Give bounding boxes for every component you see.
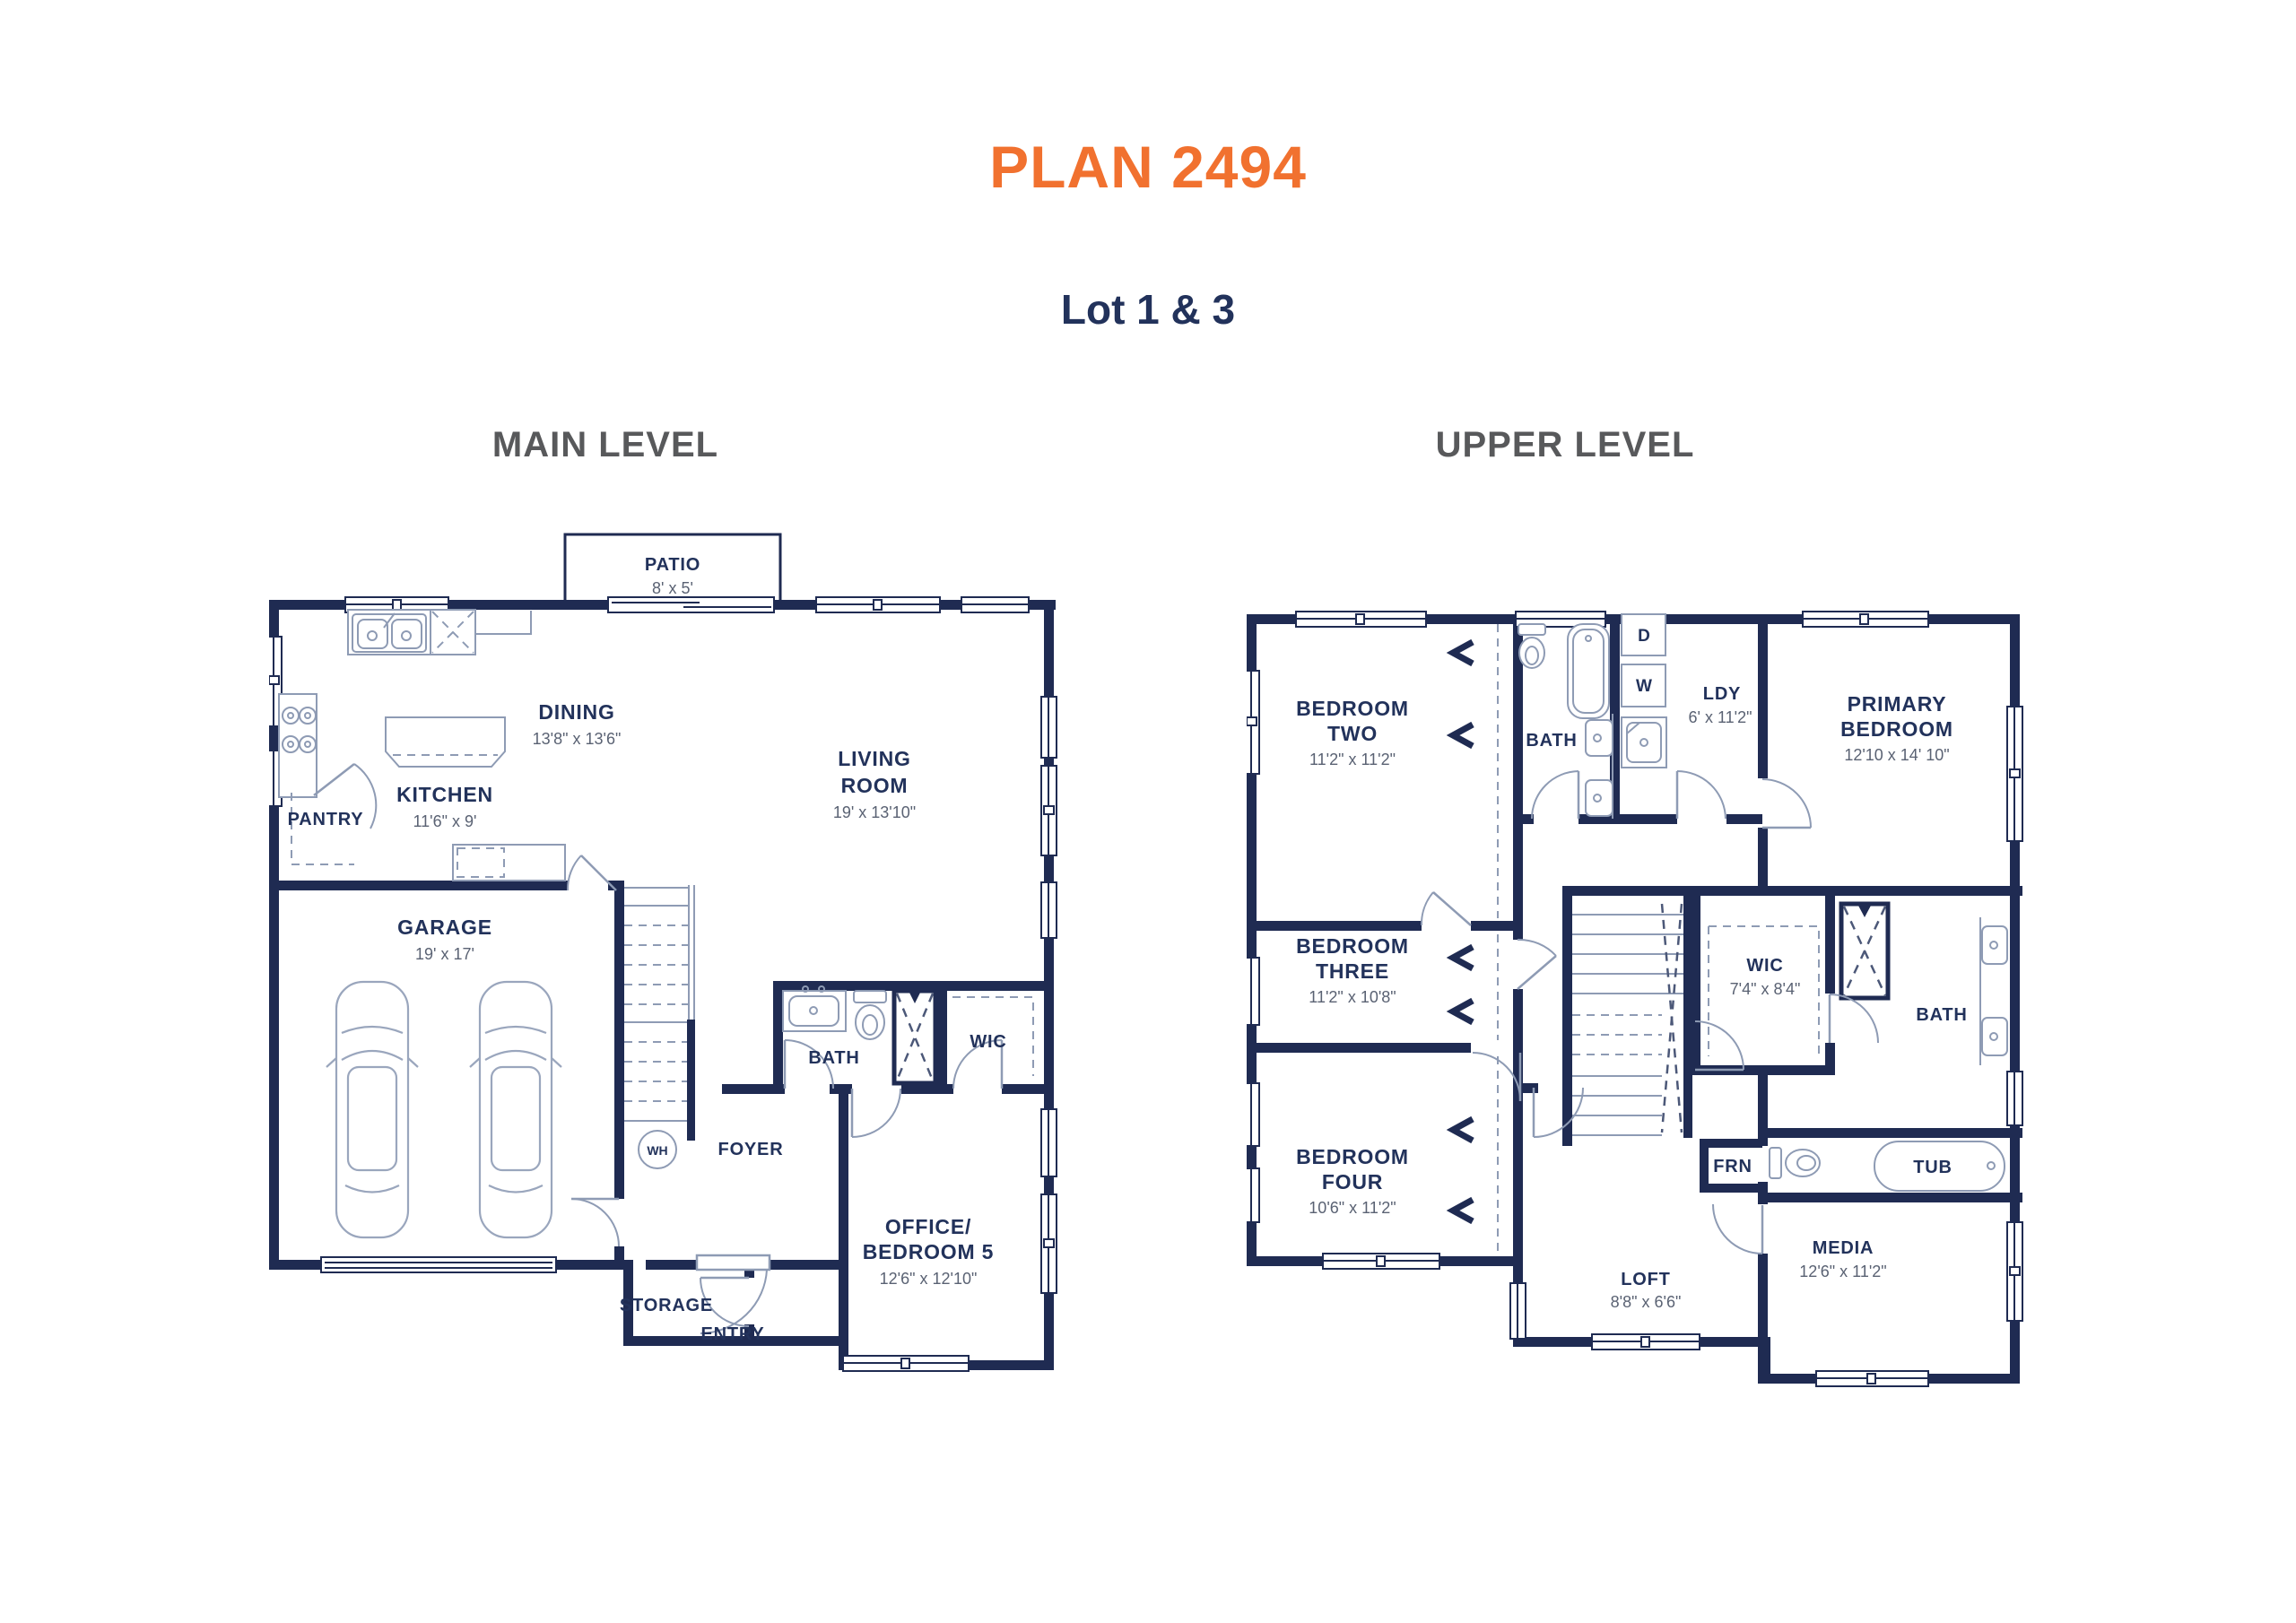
bath-label: BATH bbox=[808, 1048, 859, 1068]
dryer-label: D bbox=[1638, 627, 1650, 646]
window bbox=[1816, 1371, 1928, 1386]
window bbox=[2007, 1072, 2022, 1125]
lot-subtitle: Lot 1 & 3 bbox=[0, 285, 2296, 334]
window bbox=[1247, 671, 1259, 774]
car bbox=[470, 982, 561, 1237]
window bbox=[843, 1356, 969, 1371]
primary-label-2: BEDROOM bbox=[1840, 717, 1953, 741]
doors bbox=[1422, 771, 1878, 1254]
office-dims: 12'6" x 12'10" bbox=[880, 1270, 978, 1288]
storage-label: STORAGE bbox=[620, 1296, 713, 1315]
dining-label: DINING bbox=[538, 700, 614, 724]
laundry-dims: 6' x 11'2" bbox=[1689, 708, 1752, 726]
kitchen-fixtures bbox=[279, 610, 616, 890]
wic-dims: 7'4" x 8'4" bbox=[1730, 980, 1801, 998]
loft-dims: 8'8" x 6'6" bbox=[1611, 1293, 1682, 1311]
furnace-label: FRN bbox=[1713, 1157, 1752, 1176]
living-room-label-2: ROOM bbox=[841, 774, 909, 797]
window bbox=[2007, 707, 2022, 841]
loft-label: LOFT bbox=[1621, 1270, 1670, 1289]
bedroom-two-label-1: BEDROOM bbox=[1296, 697, 1409, 720]
plan-title: PLAN 2494 bbox=[0, 133, 2296, 201]
bedroom-two-dims: 11'2" x 11'2" bbox=[1309, 751, 1396, 768]
stairs bbox=[1572, 904, 1683, 1135]
wic-label: WIC bbox=[970, 1032, 1006, 1052]
entry-label: ENTRY bbox=[700, 1324, 764, 1344]
office-label-2: BEDROOM 5 bbox=[863, 1240, 995, 1263]
media-dims: 12'6" x 11'2" bbox=[1799, 1263, 1886, 1280]
window bbox=[1323, 1254, 1439, 1269]
patio-label: PATIO bbox=[645, 555, 700, 575]
bedroom-four-label-2: FOUR bbox=[1322, 1170, 1383, 1193]
window bbox=[1041, 766, 1057, 855]
garage-door bbox=[321, 1257, 556, 1272]
window bbox=[1041, 1194, 1057, 1293]
pantry-label: PANTRY bbox=[288, 810, 364, 829]
bedroom-two-label-2: TWO bbox=[1327, 722, 1378, 745]
main-level-heading: MAIN LEVEL bbox=[444, 425, 767, 465]
foyer-label: FOYER bbox=[718, 1140, 784, 1159]
garage-label: GARAGE bbox=[397, 916, 492, 939]
water-heater: WH bbox=[639, 1131, 676, 1168]
hall-bath-door bbox=[1532, 771, 1578, 819]
wic-label: WIC bbox=[1746, 956, 1783, 976]
patio-dims: 8' x 5' bbox=[652, 579, 693, 597]
laundry-label: LDY bbox=[1703, 684, 1741, 704]
living-room-dims: 19' x 13'10" bbox=[833, 803, 916, 821]
bedroom-four-label-1: BEDROOM bbox=[1296, 1145, 1409, 1168]
window bbox=[2007, 1222, 2022, 1321]
primary-dims: 12'10 x 14' 10" bbox=[1844, 746, 1949, 764]
bedroom-two-door bbox=[1422, 892, 1471, 925]
laundry-door bbox=[1677, 771, 1726, 819]
bedroom-three-door bbox=[1518, 940, 1556, 989]
window bbox=[1041, 882, 1057, 938]
stairs: WH bbox=[624, 885, 695, 1168]
front-entry-door bbox=[697, 1255, 770, 1333]
bedroom-four-dims: 10'6" x 11'2" bbox=[1309, 1199, 1396, 1217]
primary-door bbox=[1762, 779, 1811, 828]
living-room-label-1: LIVING bbox=[838, 747, 910, 770]
bedroom-three-label-2: THREE bbox=[1316, 959, 1389, 983]
window bbox=[1247, 958, 1259, 1025]
dining-dims: 13'8" x 13'6" bbox=[533, 730, 622, 748]
main-level-floorplan: PATIO 8' x 5' bbox=[269, 531, 1058, 1383]
washer-label: W bbox=[1636, 677, 1652, 696]
kitchen-label: KITCHEN bbox=[396, 783, 493, 806]
closets bbox=[1453, 624, 1498, 1254]
hall-bath-fixtures bbox=[1518, 624, 1613, 819]
window bbox=[1592, 1334, 1700, 1350]
garage-dims: 19' x 17' bbox=[415, 945, 474, 963]
media-label: MEDIA bbox=[1813, 1238, 1874, 1258]
kitchen-island bbox=[386, 717, 505, 767]
primary-label-1: PRIMARY bbox=[1848, 692, 1947, 716]
primary-bath-label: BATH bbox=[1916, 1005, 1967, 1025]
window bbox=[1803, 612, 1928, 627]
garage-foyer-door bbox=[571, 1199, 619, 1246]
upper-level-floorplan: BEDROOM TWO 11'2" x 11'2" BATH LDY 6' x … bbox=[1247, 581, 2036, 1393]
upper-level-heading: UPPER LEVEL bbox=[1404, 425, 1726, 465]
window bbox=[816, 597, 940, 612]
window bbox=[1510, 1283, 1526, 1339]
sliding-door bbox=[608, 597, 774, 612]
car bbox=[326, 982, 418, 1237]
bedroom-three-label-1: BEDROOM bbox=[1296, 934, 1409, 958]
window bbox=[1296, 612, 1426, 627]
window bbox=[1247, 1168, 1259, 1222]
hall-bath-label: BATH bbox=[1526, 731, 1577, 751]
media-door bbox=[1713, 1204, 1762, 1254]
office-door bbox=[852, 1089, 900, 1137]
office-label-1: OFFICE/ bbox=[885, 1215, 971, 1238]
window bbox=[961, 597, 1029, 612]
tub-label: TUB bbox=[1913, 1158, 1952, 1177]
room-patio: PATIO 8' x 5' bbox=[565, 534, 780, 606]
window bbox=[1247, 1083, 1259, 1146]
water-heater-label: WH bbox=[647, 1143, 667, 1158]
window bbox=[1041, 1109, 1057, 1176]
window bbox=[1041, 697, 1057, 758]
kitchen-dims: 11'6" x 9' bbox=[413, 812, 477, 830]
bedroom-three-dims: 11'2" x 10'8" bbox=[1309, 988, 1396, 1006]
primary-bath-door bbox=[1830, 994, 1878, 1043]
wic-door bbox=[1695, 1021, 1744, 1070]
